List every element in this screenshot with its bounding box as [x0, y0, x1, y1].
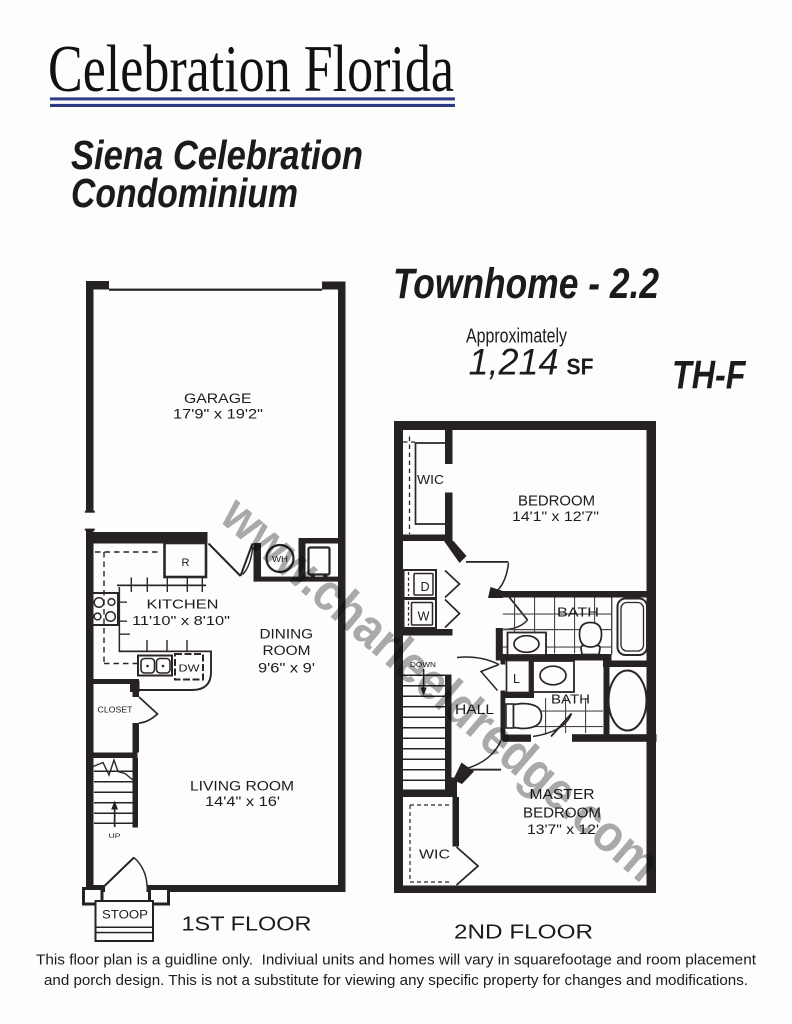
svg-text:R: R: [182, 557, 190, 569]
svg-text:14'4" x 16': 14'4" x 16': [205, 794, 280, 809]
svg-text:DINING: DINING: [260, 627, 314, 642]
svg-text:D: D: [420, 580, 429, 594]
svg-text:W: W: [418, 610, 430, 624]
svg-text:LIVING ROOM: LIVING ROOM: [190, 779, 294, 794]
svg-text:GARAGE: GARAGE: [184, 391, 252, 406]
svg-text:2ND FLOOR: 2ND FLOOR: [454, 922, 593, 944]
svg-text:DW: DW: [179, 663, 200, 675]
svg-text:BEDROOM: BEDROOM: [518, 494, 595, 510]
svg-text:14'1" x 12'7": 14'1" x 12'7": [512, 509, 599, 524]
svg-text:KITCHEN: KITCHEN: [147, 597, 219, 612]
svg-text:BATH: BATH: [551, 692, 590, 707]
svg-text:STOOP: STOOP: [102, 910, 148, 922]
svg-text:ROOM: ROOM: [263, 643, 311, 658]
svg-text:Celebration Florida: Celebration Florida: [48, 32, 454, 106]
svg-text:9'6" x 9': 9'6" x 9': [258, 661, 315, 676]
svg-text:UP: UP: [109, 833, 121, 840]
svg-text:SF: SF: [567, 354, 594, 380]
svg-text:and porch design. This is not: and porch design. This is not a substitu…: [44, 972, 748, 989]
svg-text:This floor plan is a guidline: This floor plan is a guidline only. Indi…: [36, 952, 757, 969]
svg-text:L: L: [513, 672, 520, 686]
svg-text:1,214: 1,214: [469, 342, 559, 383]
svg-text:Condominium: Condominium: [71, 170, 298, 216]
svg-text:1ST FLOOR: 1ST FLOOR: [182, 914, 312, 936]
svg-text:11'10" x 8'10": 11'10" x 8'10": [132, 614, 230, 628]
svg-text:17'9" x 19'2": 17'9" x 19'2": [173, 407, 263, 422]
svg-text:WIC: WIC: [419, 848, 450, 862]
svg-text:WIC: WIC: [417, 473, 444, 487]
svg-text:TH-F: TH-F: [672, 354, 746, 398]
svg-text:Townhome - 2.2: Townhome - 2.2: [393, 261, 659, 308]
svg-text:CLOSET: CLOSET: [98, 706, 133, 715]
svg-text:BATH: BATH: [557, 605, 599, 620]
